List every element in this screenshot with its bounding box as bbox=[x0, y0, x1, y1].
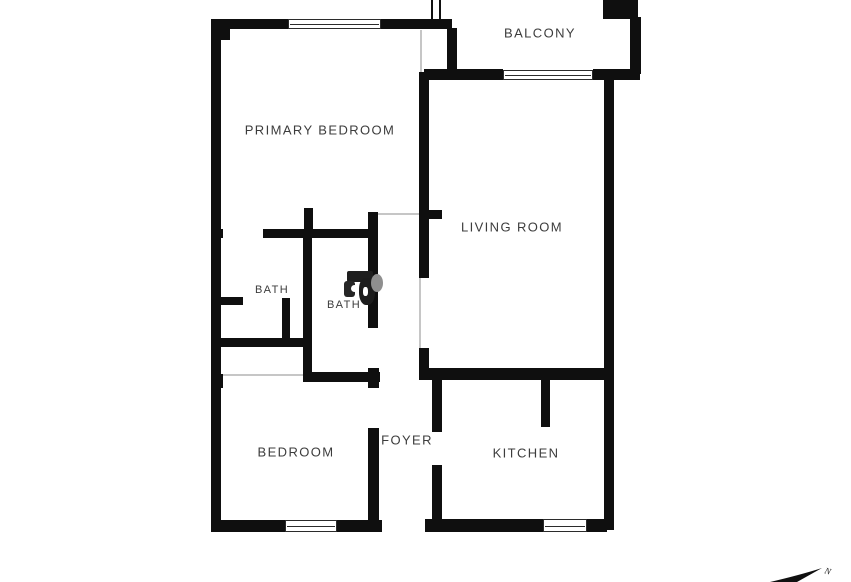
bath1-nook-stub-v bbox=[282, 298, 290, 340]
kitchen-left-wall-top bbox=[432, 380, 442, 432]
left-exterior-wall bbox=[211, 19, 221, 532]
right-exterior-wall bbox=[604, 78, 614, 530]
compass-arrow bbox=[770, 568, 822, 582]
living-room-left-wall-mid bbox=[419, 219, 429, 278]
watermark-frag-4 bbox=[371, 274, 383, 292]
compass-north-arrow-icon: N bbox=[730, 542, 850, 582]
living-room-arch-line bbox=[419, 278, 421, 348]
balcony-bottom-wall-left bbox=[424, 69, 503, 80]
room-label-bedroom: BEDROOM bbox=[258, 445, 335, 460]
watermark-hole-1 bbox=[351, 285, 358, 292]
living-room-left-stub bbox=[419, 210, 442, 219]
hall-left-wall bbox=[368, 212, 378, 328]
balcony-right-wall bbox=[630, 17, 641, 74]
balcony-left-wall bbox=[447, 28, 457, 75]
balcony-door-line bbox=[420, 30, 422, 72]
top-wall-right bbox=[381, 19, 452, 29]
bedroom-right-wall bbox=[368, 428, 379, 532]
bedroom-bottom-window bbox=[285, 520, 337, 532]
floorplan-canvas: BALCONYPRIMARY BEDROOMLIVING ROOMBATHBAT… bbox=[0, 0, 851, 582]
kitchen-interior-stub bbox=[541, 380, 550, 427]
room-label-primary-bedroom: PRIMARY BEDROOM bbox=[245, 123, 396, 138]
kitchen-top-wall bbox=[429, 368, 607, 380]
room-label-kitchen: KITCHEN bbox=[493, 446, 560, 461]
primary-bedroom-top-window bbox=[288, 19, 381, 29]
closet-open-line bbox=[223, 374, 303, 376]
bath-divider-wall bbox=[303, 229, 312, 382]
primary-bedroom-right-wall bbox=[419, 72, 429, 212]
balcony-railing bbox=[503, 70, 593, 80]
hallway-open-line bbox=[378, 213, 419, 215]
bath-top-stub-left bbox=[216, 229, 223, 238]
bath1-nook-stub-h bbox=[220, 297, 243, 305]
kitchen-bottom-wall-a bbox=[425, 519, 543, 532]
left-wall-notch bbox=[211, 374, 223, 388]
room-label-bath-2: BATH bbox=[327, 299, 361, 311]
bedroom-top-wall bbox=[303, 372, 380, 382]
living-room-left-wall-low bbox=[419, 348, 429, 380]
compass-n-label: N bbox=[822, 565, 833, 577]
top-right-block bbox=[603, 0, 638, 19]
bath-top-wall bbox=[263, 229, 372, 238]
room-label-living-room: LIVING ROOM bbox=[461, 220, 563, 235]
bottom-wall-bedroom-a bbox=[211, 520, 285, 532]
room-label-foyer: FOYER bbox=[381, 433, 433, 448]
watermark-hole-2 bbox=[363, 287, 368, 296]
kitchen-left-wall-bottom bbox=[432, 465, 442, 531]
bath1-bottom-wall bbox=[216, 338, 312, 347]
bath-divider-top-stub bbox=[304, 208, 313, 230]
top-open-wall-stub bbox=[431, 0, 441, 19]
room-label-bath-1: BATH bbox=[255, 284, 289, 296]
room-label-balcony: BALCONY bbox=[504, 26, 576, 41]
kitchen-bottom-window bbox=[543, 519, 587, 532]
